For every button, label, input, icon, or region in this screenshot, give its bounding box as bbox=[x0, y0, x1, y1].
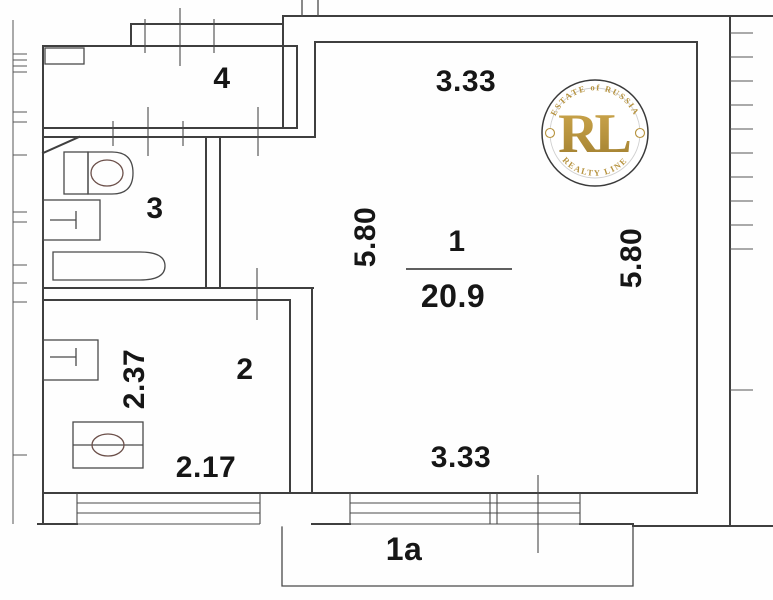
boundary-hatch-left bbox=[13, 20, 27, 524]
balcony-label: 1a bbox=[386, 531, 423, 567]
hall-closet bbox=[45, 48, 84, 64]
room-1-label: 1 bbox=[448, 225, 465, 258]
room-2-label: 2 bbox=[236, 353, 253, 386]
washbasin bbox=[43, 200, 100, 240]
logo-left-dot-icon bbox=[546, 129, 555, 138]
toilet bbox=[64, 152, 133, 194]
dim-kitchen-width: 2.17 bbox=[176, 451, 236, 484]
kitchen-window bbox=[77, 493, 260, 524]
floorplan-page: 4 3 2 1 20.9 1a 3.33 3.33 5.80 5.80 2.37… bbox=[0, 0, 773, 600]
bathtub bbox=[53, 252, 165, 280]
dim-right: 5.80 bbox=[615, 228, 648, 288]
realty-line-logo: ESTATE of RUSSIA REALTY LINE RL bbox=[542, 80, 648, 186]
stove bbox=[43, 340, 98, 380]
logo-right-dot-icon bbox=[636, 129, 645, 138]
living-room-window bbox=[350, 493, 580, 524]
dim-top: 3.33 bbox=[436, 65, 496, 98]
windows bbox=[77, 493, 580, 524]
room-1-area: 20.9 bbox=[421, 278, 485, 314]
balcony-outline bbox=[282, 527, 633, 586]
kitchen-sink bbox=[73, 422, 143, 468]
floorplan-drawing: 4 3 2 1 20.9 1a 3.33 3.33 5.80 5.80 2.37… bbox=[0, 0, 773, 600]
exterior-walls bbox=[38, 0, 773, 526]
logo-monogram: RL bbox=[558, 103, 629, 165]
room-4-label: 4 bbox=[213, 62, 230, 95]
dim-left: 5.80 bbox=[349, 207, 382, 267]
room-3-label: 3 bbox=[146, 192, 163, 225]
wall-hatch-right bbox=[730, 33, 753, 390]
dim-bottom: 3.33 bbox=[431, 441, 491, 474]
dim-kitchen-height: 2.37 bbox=[118, 349, 151, 409]
